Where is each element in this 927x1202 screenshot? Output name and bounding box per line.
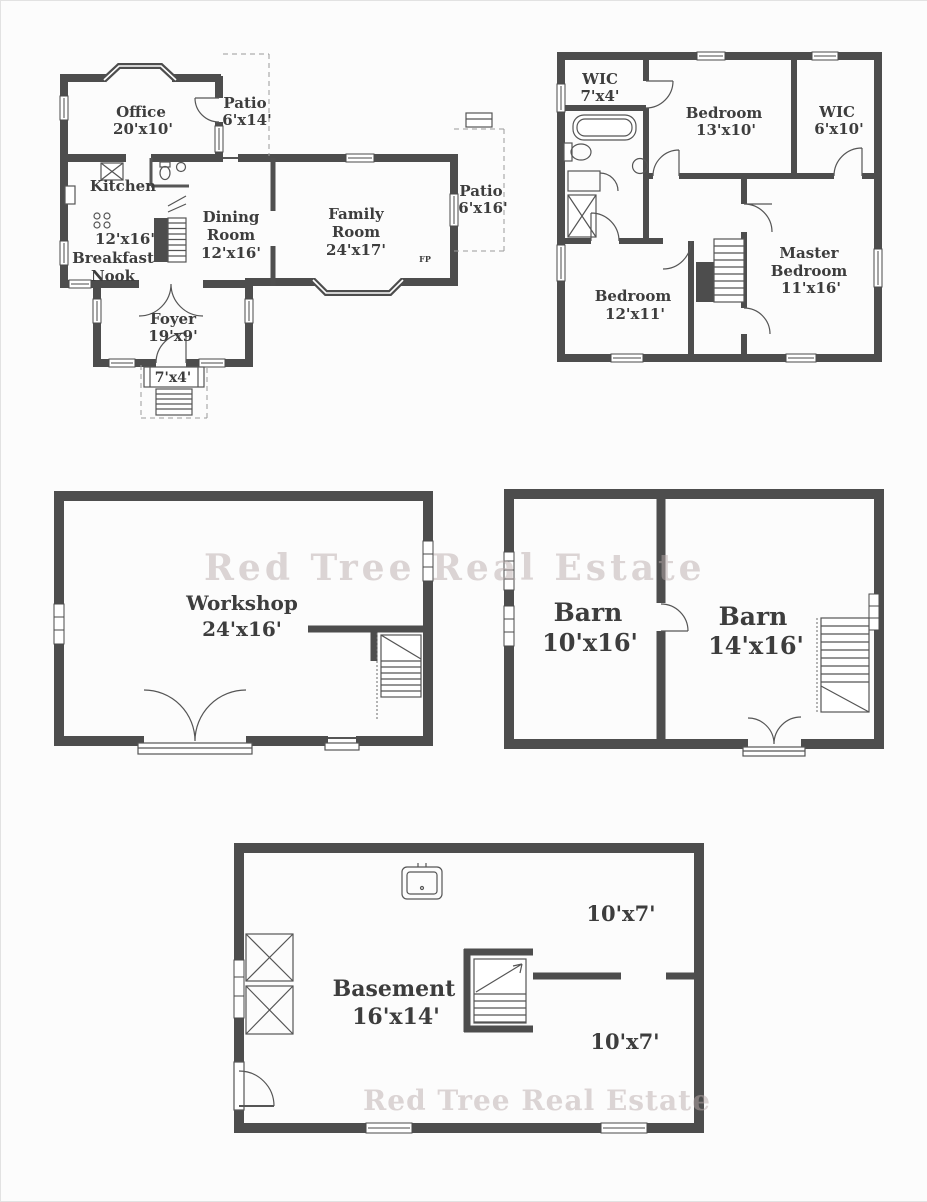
bedroom-13-label: Bedroom [686, 104, 763, 122]
workshop-plan: Workshop 24'x16' [46, 481, 446, 761]
double-door [138, 690, 252, 754]
foyer-label: Foyer [150, 310, 197, 328]
staircase-icon [377, 633, 421, 719]
kitchen-label: Kitchen [90, 177, 156, 195]
staircase-icon [154, 196, 186, 262]
barn-plan: Barn 10'x16' Barn 14'x16' [496, 481, 891, 761]
family-room-label-2: Room [332, 223, 380, 241]
staircase-icon [817, 618, 869, 712]
utility-sink-icon [402, 863, 442, 899]
basement-plan: Basement 16'x14' 10'x7' 10'x7' [226, 836, 716, 1146]
room-bottom-dims: 10'x7' [590, 1029, 659, 1054]
patio-right-label: Patio [459, 182, 502, 200]
workshop-dims: 24'x16' [202, 617, 282, 641]
bedroom-12-label: Bedroom [595, 287, 672, 305]
toilet-icon [564, 143, 591, 161]
staircase-icon [696, 239, 744, 302]
ac-unit-icon [466, 113, 492, 127]
dining-room-label-1: Dining [203, 208, 260, 226]
fireplace-label: FP [419, 254, 431, 264]
workshop-labels: Workshop 24'x16' [185, 591, 298, 641]
office-dims: 20'x10' [113, 120, 173, 138]
family-room-dims: 24'x17' [326, 241, 386, 259]
counter-icon [65, 186, 75, 204]
barn-right-label: Barn [719, 602, 788, 631]
wic-right-dims: 6'x10' [814, 120, 863, 138]
kitchen-dims: 12'x16' [95, 230, 155, 248]
staircase-icon [474, 959, 526, 1023]
basement-label: Basement [333, 976, 457, 1002]
powder-room-icons [160, 162, 186, 180]
basement-walls [234, 843, 704, 1133]
bedroom-12-dims: 12'x11' [605, 305, 665, 323]
shower-icon [568, 195, 596, 237]
room-top-dims: 10'x7' [586, 901, 655, 926]
barn-left-dims: 10'x16' [542, 628, 638, 657]
barn-right-dims: 14'x16' [708, 631, 804, 660]
door-arc [661, 604, 688, 631]
bathtub-icon [573, 115, 636, 140]
breakfast-nook-label-1: Breakfast [72, 249, 154, 267]
wic-right-label: WIC [818, 103, 855, 121]
foyer-dims: 19'x9' [148, 327, 197, 345]
first-floor-plan: Office 20'x10' Patio 6'x14' Kitchen 12'x… [51, 46, 511, 421]
master-bedroom-label-2: Bedroom [771, 262, 848, 280]
stoop-dims: 7'x4' [155, 370, 191, 386]
workshop-label: Workshop [185, 591, 298, 615]
support-column-icon [246, 934, 293, 1034]
master-bedroom-dims: 11'x16' [781, 279, 841, 297]
office-label: Office [116, 103, 166, 121]
bedroom-13-dims: 13'x10' [696, 121, 756, 139]
family-room-label-1: Family [328, 205, 385, 223]
dining-room-label-2: Room [207, 226, 255, 244]
wic-small-dims: 7'x4' [580, 87, 619, 105]
stove-icon [94, 213, 110, 228]
floor-plan-page: Office 20'x10' Patio 6'x14' Kitchen 12'x… [0, 0, 927, 1202]
breakfast-nook-label-2: Nook [91, 267, 136, 285]
patio-right-dims: 6'x16' [458, 199, 507, 217]
entry-door [234, 1062, 274, 1110]
barn-left-label: Barn [554, 598, 623, 627]
dining-room-dims: 12'x16' [201, 244, 261, 262]
master-bedroom-label-1: Master [779, 244, 839, 262]
first-floor-labels: Office 20'x10' Patio 6'x14' Kitchen 12'x… [72, 94, 508, 386]
second-floor-plan: WIC 7'x4' Bedroom 13'x10' WIC 6'x10' Bed… [551, 49, 891, 369]
side-door [325, 738, 359, 750]
patio-upper-label: Patio [223, 94, 266, 112]
basement-dims: 16'x14' [352, 1004, 440, 1030]
wic-small-label: WIC [581, 70, 618, 88]
patio-upper-dims: 6'x14' [222, 111, 271, 129]
double-door [743, 717, 805, 756]
linen-closet-icon [568, 171, 618, 191]
